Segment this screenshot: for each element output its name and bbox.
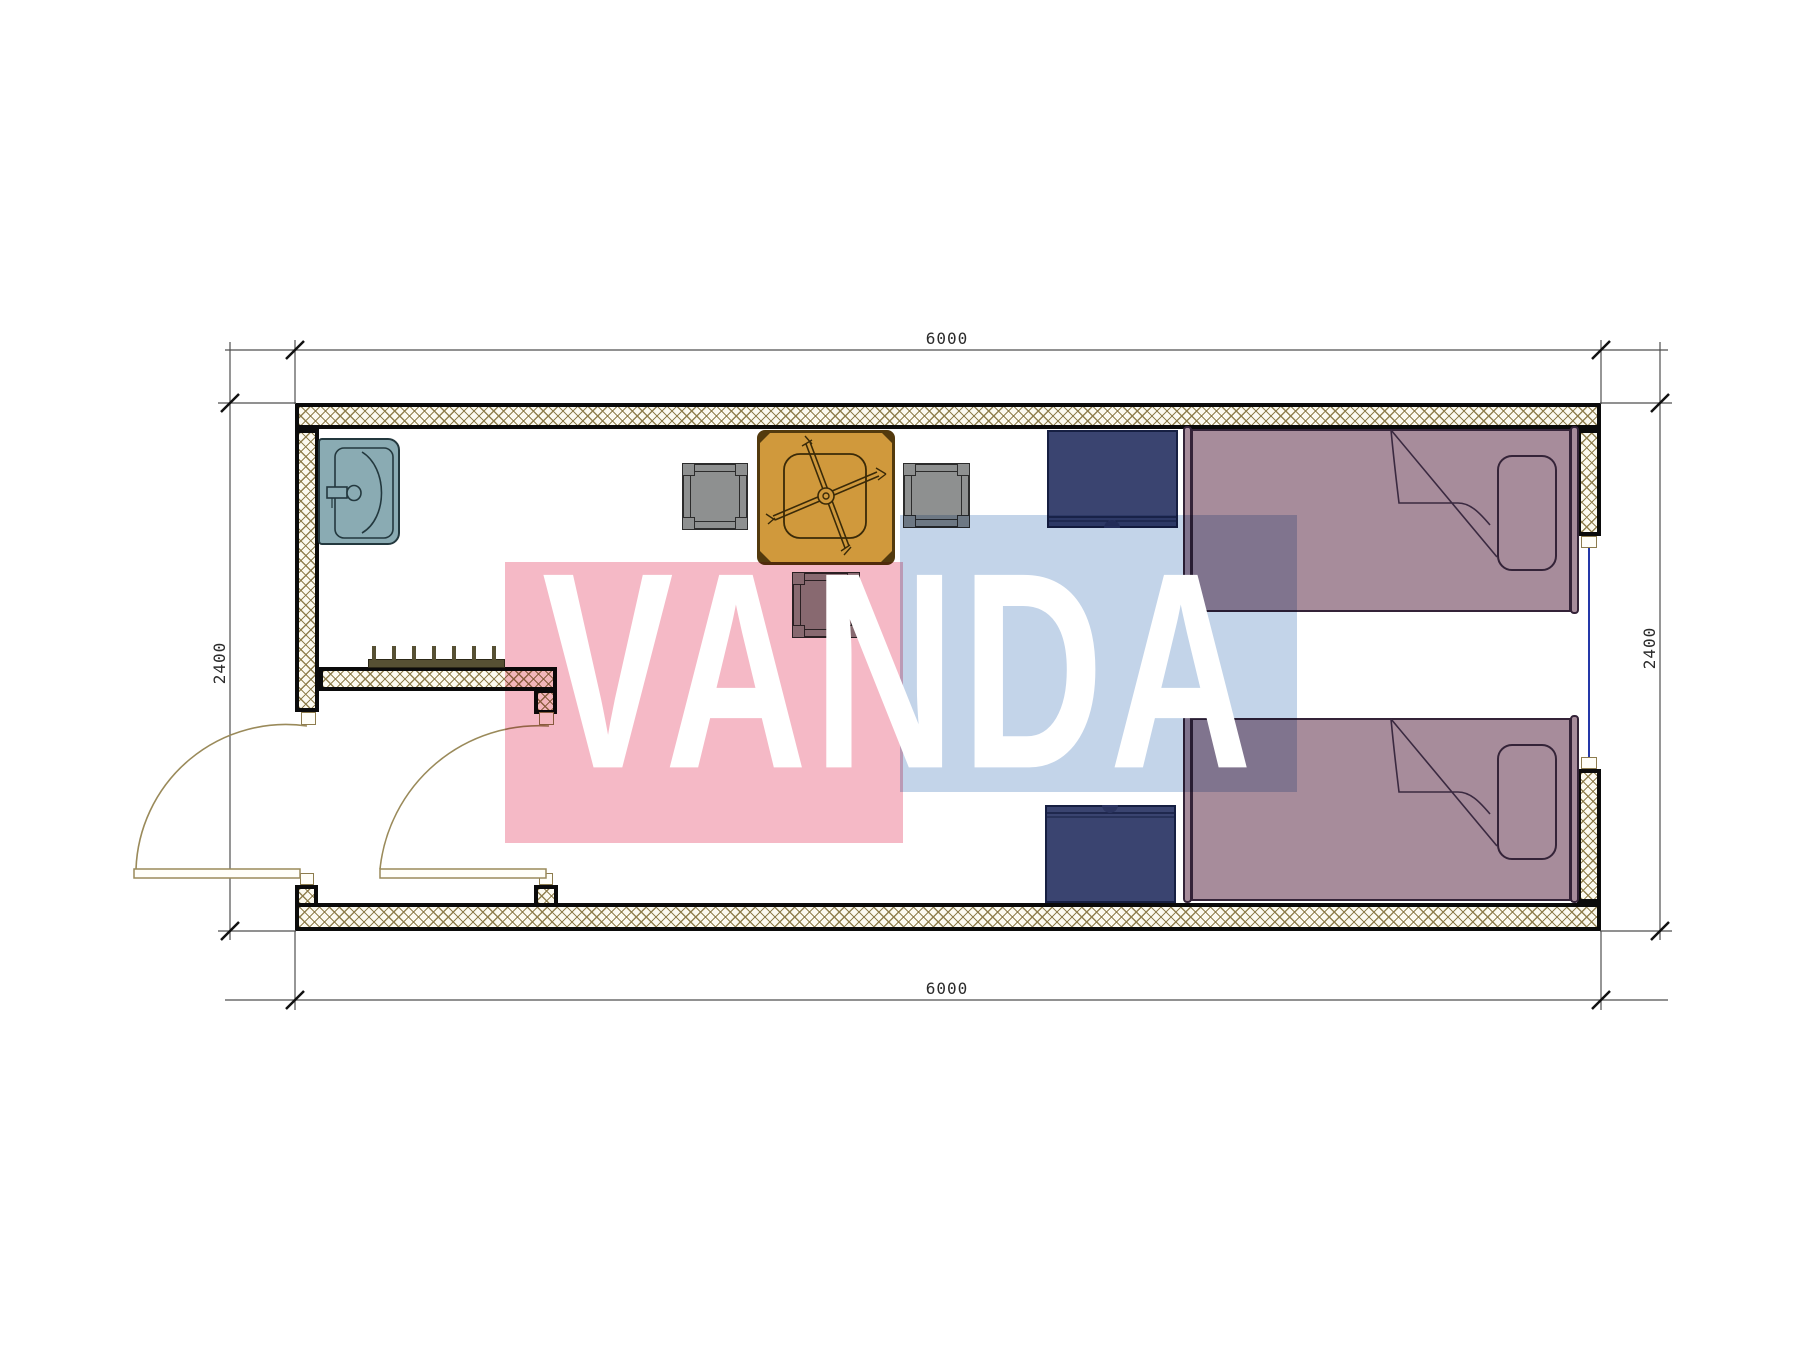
door-right-leaf — [380, 869, 546, 878]
nightstand-top — [1047, 430, 1178, 528]
door-left-leaf — [134, 869, 300, 878]
stool-leg — [735, 463, 748, 476]
door-jamb-left — [295, 885, 318, 907]
door-stop-bottom-left — [300, 873, 314, 885]
watermark-text-container: VANDA — [0, 540, 1800, 802]
wall-top — [295, 403, 1601, 429]
stool-leg — [682, 463, 695, 476]
stool-leg — [903, 463, 916, 476]
dimension-label-top: 6000 — [907, 329, 987, 349]
watermark-text: VANDA — [542, 531, 1258, 811]
wall-bottom — [295, 903, 1601, 931]
stool-seat — [911, 471, 962, 520]
stool-leg — [957, 463, 970, 476]
dimension-label-bottom: 6000 — [907, 979, 987, 999]
floor-plan-canvas: 6000 6000 2400 2400 VANDA — [0, 0, 1800, 1350]
sink — [318, 438, 400, 545]
door-jamb-right — [534, 885, 558, 907]
door-stop-bottom-right — [539, 873, 553, 885]
wall-right-upper — [1577, 429, 1601, 536]
